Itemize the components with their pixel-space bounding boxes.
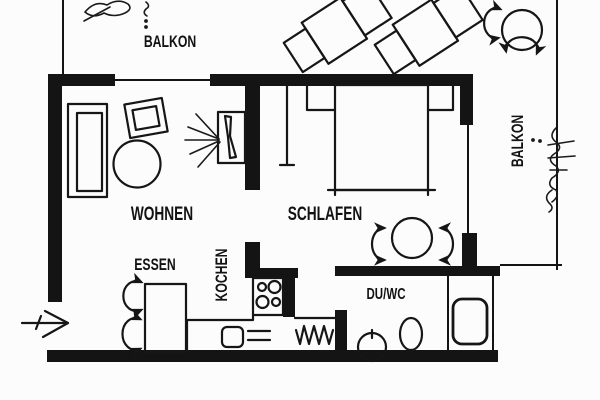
floor-plan-drawing <box>0 0 600 400</box>
room-label-living: WOHNEN <box>131 204 193 226</box>
wall-right-top-pillar <box>460 74 473 125</box>
walls <box>47 74 500 362</box>
chair-arc-icon <box>372 228 384 260</box>
dining-table-icon <box>145 284 186 352</box>
room-label-kitchen: KOCHEN <box>212 248 232 301</box>
wall-sleeping-bottom <box>335 266 500 276</box>
sofa-icon <box>68 104 107 197</box>
wall-kitchen-right <box>283 270 295 317</box>
coffee-table-icon <box>114 141 161 188</box>
chair-arc-icon <box>441 228 453 260</box>
chair-arc-icon <box>122 318 140 350</box>
kitchen-sink-icon <box>222 327 243 347</box>
round-table-icon <box>392 218 432 258</box>
plant-icon <box>84 1 149 28</box>
armchair-icon <box>124 98 167 138</box>
room-label-dining: ESSEN <box>134 255 176 275</box>
toilet-icon <box>400 318 422 350</box>
room-label-bath: DU/WC <box>366 286 405 304</box>
lounge-chair-icon <box>280 0 394 78</box>
room-label-balcony-top: BALKON <box>144 32 196 52</box>
tv-icon <box>218 112 245 163</box>
wall-left <box>48 74 62 302</box>
drainer-lines-icon <box>248 331 270 340</box>
nightstand-icon <box>307 85 335 110</box>
wall-right-mid-pillar <box>462 233 477 266</box>
stove-burners-icon <box>257 281 281 308</box>
entrance-arrow-icon <box>22 311 68 337</box>
thin-lines <box>63 0 562 352</box>
floor-plan: BALKON BALKON WOHNEN SCHLAFEN ESSEN KOCH… <box>0 0 600 400</box>
shower-icon <box>453 299 487 344</box>
wall-living-sleeping <box>245 74 260 190</box>
nightstand-icon <box>428 85 453 110</box>
wall-bottom <box>47 350 498 362</box>
room-label-sleeping: SCHLAFEN <box>288 204 362 226</box>
wardrobe-icon <box>280 85 294 165</box>
bed-icon <box>328 85 435 195</box>
tv-light-rays-icon <box>185 114 220 167</box>
room-label-balcony-right: BALKON <box>508 115 528 167</box>
radiator-icon <box>295 318 335 344</box>
plant-icon <box>532 128 575 212</box>
wall-bath-left <box>335 310 347 352</box>
chair-arc-icon <box>484 8 500 38</box>
chair-arc-icon <box>123 281 141 311</box>
